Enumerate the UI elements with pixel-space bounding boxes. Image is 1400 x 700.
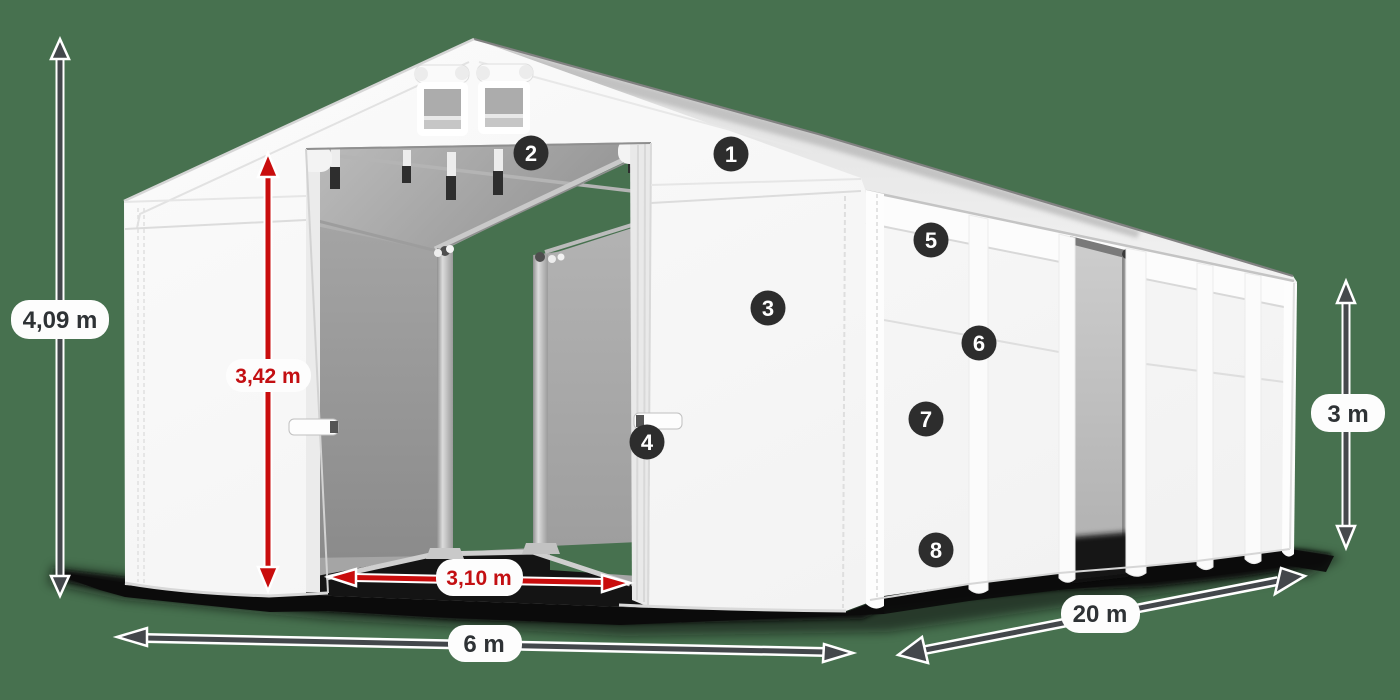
svg-text:2: 2 [525, 141, 537, 166]
svg-text:4: 4 [641, 430, 654, 455]
svg-text:3,10 m: 3,10 m [446, 567, 511, 590]
svg-text:6 m: 6 m [463, 631, 504, 658]
svg-text:8: 8 [930, 538, 942, 563]
svg-text:20 m: 20 m [1073, 601, 1128, 628]
svg-text:5: 5 [925, 228, 937, 253]
svg-text:3,42 m: 3,42 m [235, 365, 300, 388]
svg-text:6: 6 [973, 331, 985, 356]
svg-text:7: 7 [920, 407, 932, 432]
svg-text:4,09 m: 4,09 m [23, 307, 98, 334]
svg-text:3: 3 [762, 296, 774, 321]
svg-text:1: 1 [725, 142, 737, 167]
svg-text:3 m: 3 m [1327, 401, 1368, 428]
